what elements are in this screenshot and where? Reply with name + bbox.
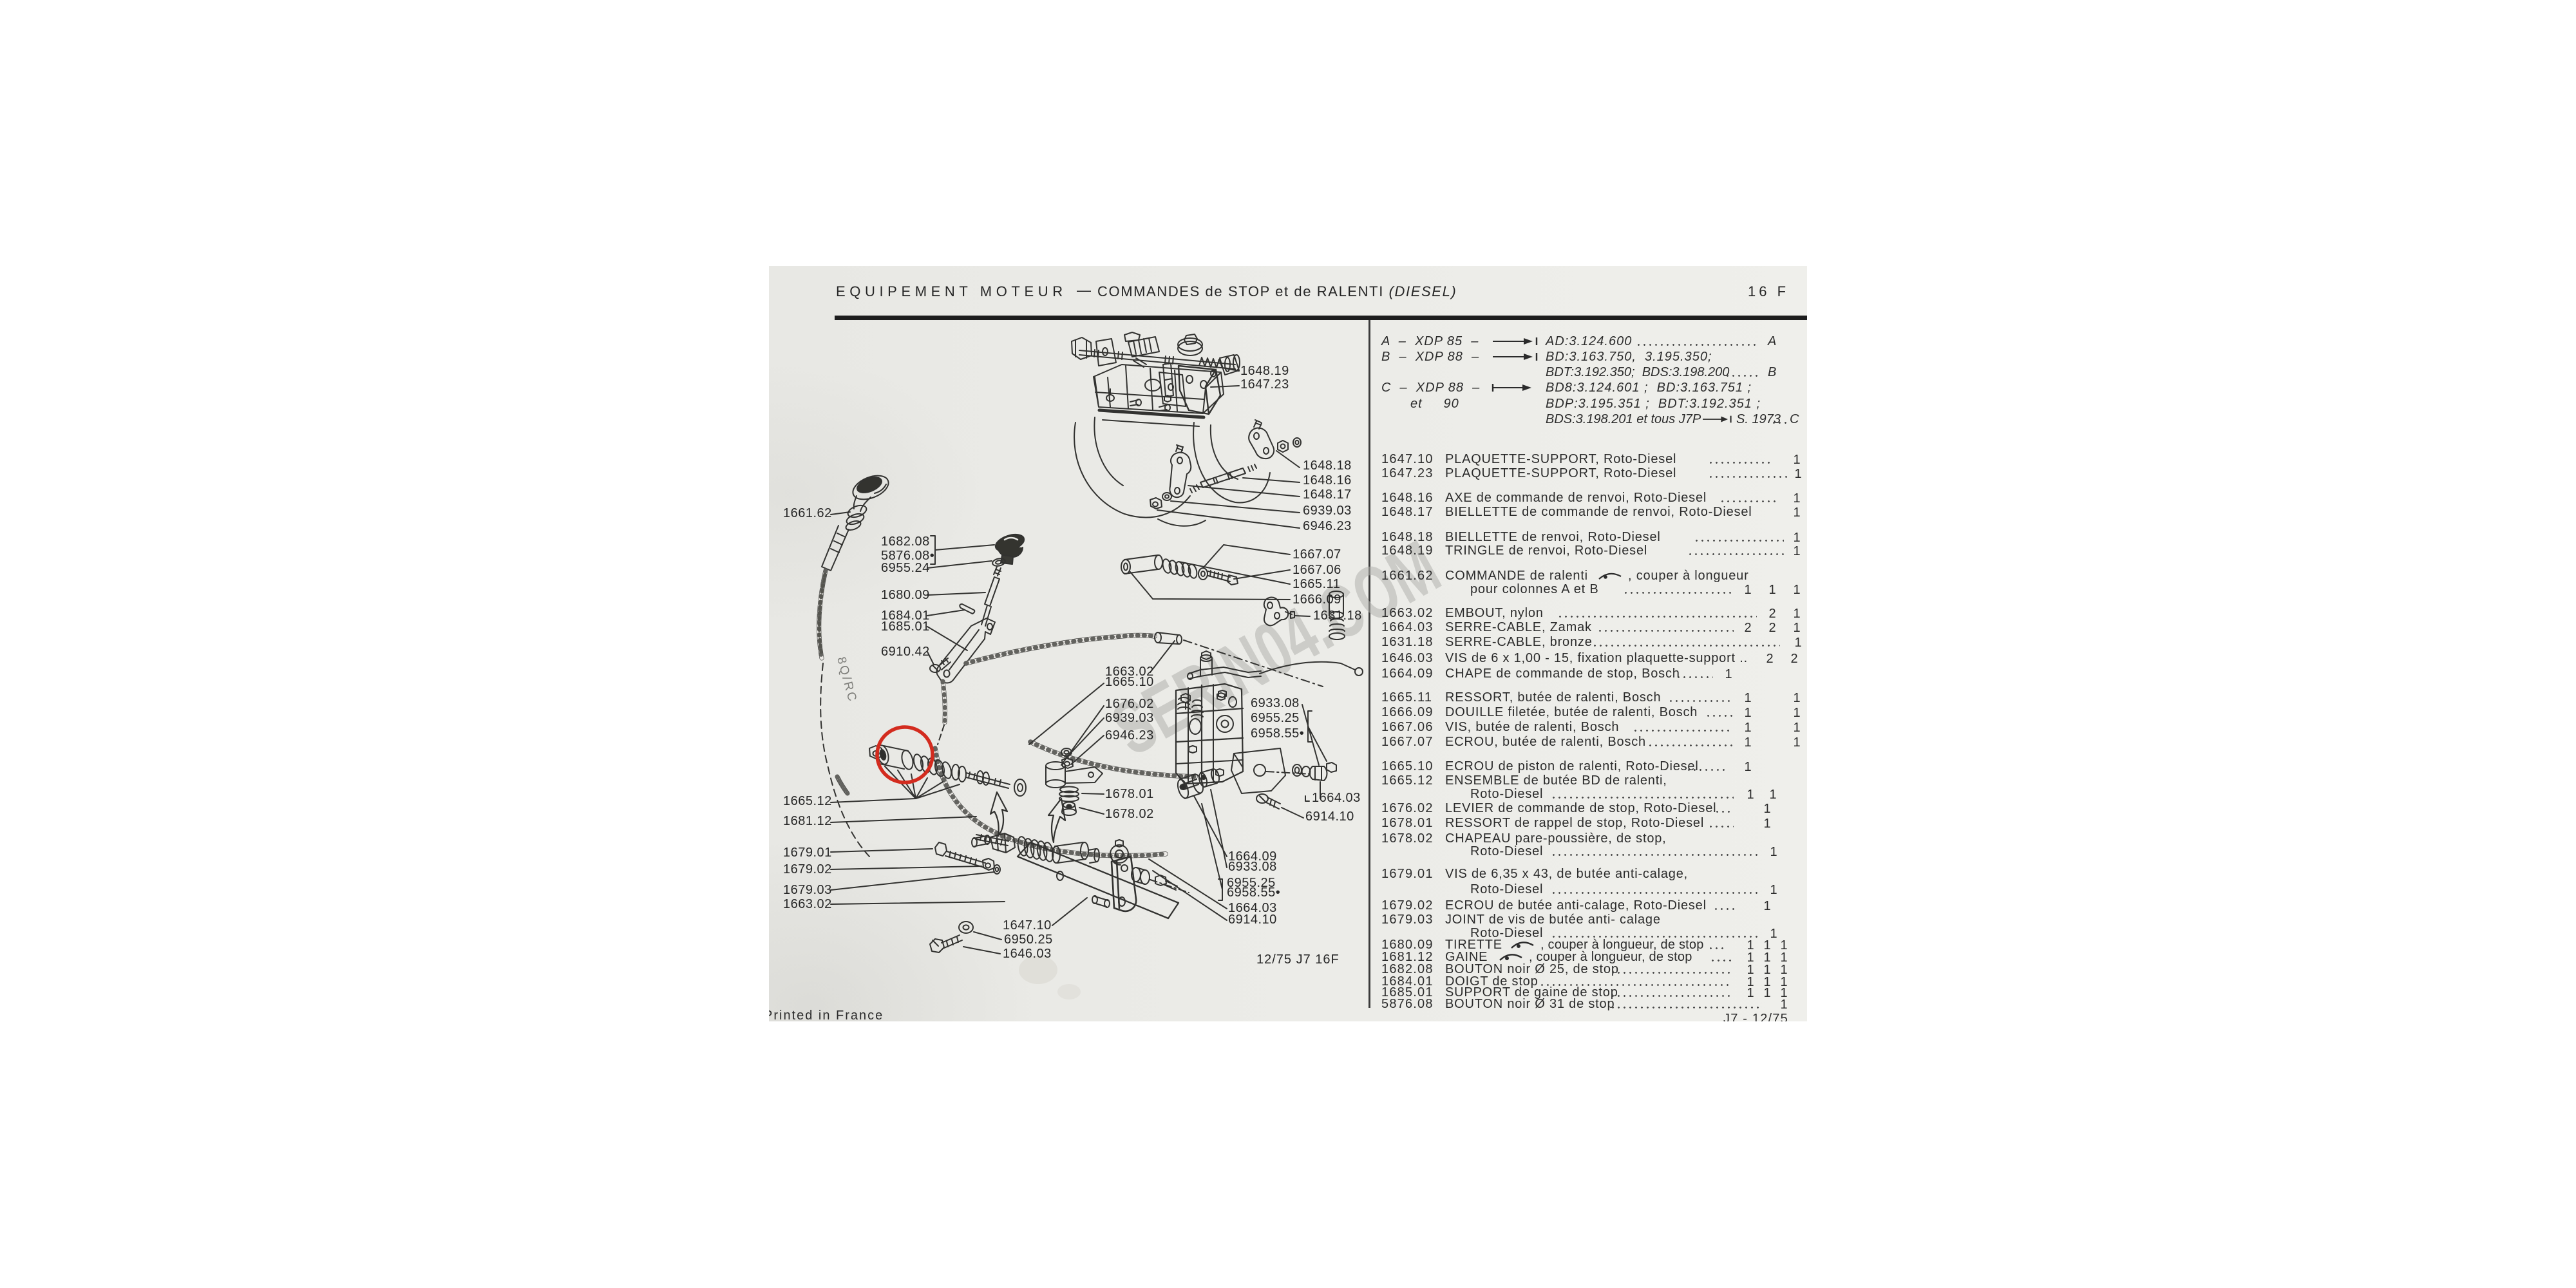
svg-text:1665.12: 1665.12 <box>783 794 832 808</box>
svg-text:6955.25: 6955.25 <box>1251 711 1300 725</box>
svg-text:6914.10: 6914.10 <box>1305 810 1354 824</box>
svg-text:1667.07: 1667.07 <box>1293 547 1341 562</box>
svg-text:6914.10: 6914.10 <box>1228 913 1277 927</box>
svg-text:6939.03: 6939.03 <box>1105 711 1154 725</box>
svg-text:6939.03: 6939.03 <box>1303 504 1352 518</box>
svg-text:1678.02: 1678.02 <box>1105 807 1154 821</box>
svg-text:12/75 J7 16F: 12/75 J7 16F <box>1256 952 1340 967</box>
svg-text:1678.01: 1678.01 <box>1105 787 1154 801</box>
svg-text:6946.23: 6946.23 <box>1303 519 1352 533</box>
svg-text:1679.01: 1679.01 <box>783 846 832 860</box>
svg-text:8Q/RC: 8Q/RC <box>834 656 859 705</box>
svg-text:1676.02: 1676.02 <box>1105 697 1154 711</box>
svg-text:1647.23: 1647.23 <box>1240 377 1289 392</box>
svg-text:1631.18: 1631.18 <box>1313 609 1362 623</box>
svg-text:1648.16: 1648.16 <box>1303 473 1352 488</box>
svg-text:1667.06: 1667.06 <box>1293 563 1341 577</box>
svg-text:1646.03: 1646.03 <box>1003 947 1052 961</box>
svg-text:6950.25: 6950.25 <box>1004 933 1053 947</box>
svg-text:1663.02: 1663.02 <box>783 897 832 911</box>
svg-text:1647.10: 1647.10 <box>1003 918 1052 933</box>
svg-text:1664.03: 1664.03 <box>1312 791 1361 805</box>
svg-text:6946.23: 6946.23 <box>1105 728 1154 743</box>
svg-text:1648.17: 1648.17 <box>1303 488 1352 502</box>
svg-text:6933.08: 6933.08 <box>1228 860 1277 874</box>
svg-text:1682.08: 1682.08 <box>881 535 930 549</box>
svg-text:6958.55•: 6958.55• <box>1251 726 1304 741</box>
svg-text:1681.12: 1681.12 <box>783 814 832 828</box>
svg-text:1661.62: 1661.62 <box>783 506 832 520</box>
svg-text:6933.08: 6933.08 <box>1251 696 1300 710</box>
svg-text:1665.10: 1665.10 <box>1105 675 1154 689</box>
svg-text:6955.24: 6955.24 <box>881 561 930 575</box>
svg-text:1665.11: 1665.11 <box>1293 577 1340 591</box>
svg-text:1680.09: 1680.09 <box>881 588 930 602</box>
svg-text:1666.09: 1666.09 <box>1293 592 1341 607</box>
svg-text:1648.19: 1648.19 <box>1240 364 1289 378</box>
svg-text:1679.02: 1679.02 <box>783 862 832 876</box>
svg-text:1685.01: 1685.01 <box>881 620 930 634</box>
svg-text:1679.03: 1679.03 <box>783 883 832 897</box>
svg-text:1648.18: 1648.18 <box>1303 459 1352 473</box>
svg-text:6958.55•: 6958.55• <box>1227 885 1280 900</box>
svg-text:6910.42: 6910.42 <box>881 645 930 659</box>
